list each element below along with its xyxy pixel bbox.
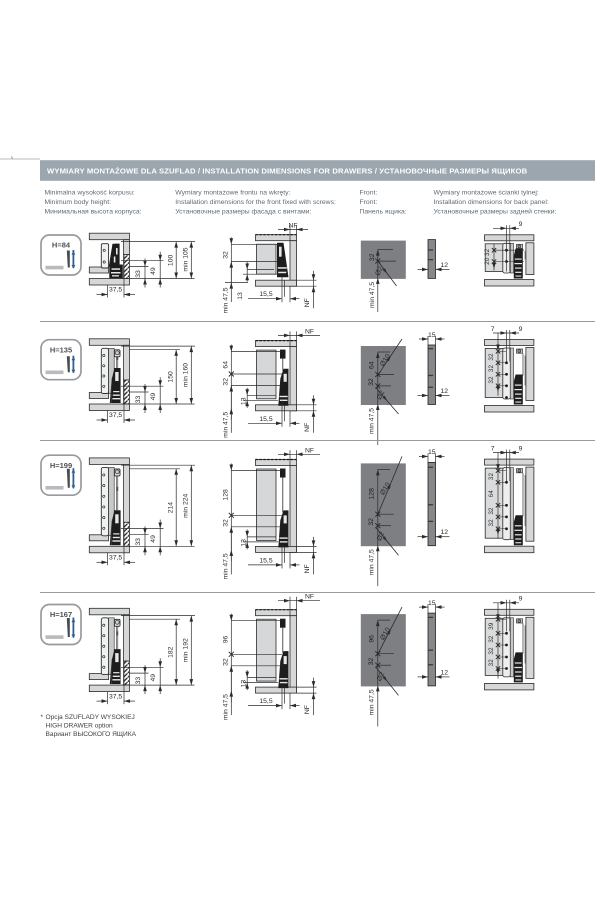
- svg-text:32: 32: [222, 519, 229, 527]
- svg-text:15,5: 15,5: [259, 557, 272, 564]
- svg-text:*: *: [41, 714, 44, 721]
- svg-text:214: 214: [167, 502, 174, 514]
- svg-text:32: 32: [222, 658, 229, 666]
- svg-text:15: 15: [428, 449, 436, 456]
- svg-text:NF: NF: [305, 328, 314, 335]
- svg-text:64: 64: [488, 490, 495, 498]
- svg-text:NF: NF: [304, 705, 311, 714]
- svg-text:33: 33: [135, 677, 142, 685]
- svg-text:Installation dimensions for ba: Installation dimensions for back panel:: [434, 199, 549, 206]
- svg-text:128: 128: [222, 489, 229, 501]
- svg-text:37,5: 37,5: [109, 693, 122, 700]
- svg-text:32: 32: [222, 378, 229, 386]
- svg-text:32: 32: [488, 376, 495, 384]
- svg-text:NF: NF: [304, 564, 311, 573]
- svg-text:64: 64: [368, 361, 375, 369]
- svg-text:49: 49: [150, 393, 157, 401]
- svg-text:min 224: min 224: [183, 493, 190, 517]
- svg-text:NF: NF: [288, 223, 297, 230]
- svg-text:15,5: 15,5: [259, 698, 272, 705]
- svg-text:min 47,5: min 47,5: [222, 412, 229, 438]
- svg-text:15: 15: [428, 332, 436, 339]
- svg-text:33: 33: [135, 396, 142, 404]
- svg-text:96: 96: [222, 636, 229, 644]
- svg-text:32: 32: [222, 251, 229, 259]
- svg-text:12: 12: [441, 262, 449, 269]
- svg-text:49: 49: [150, 674, 157, 682]
- svg-text:33: 33: [135, 270, 142, 278]
- svg-text:H=84: H=84: [52, 241, 71, 250]
- svg-text:182: 182: [167, 646, 174, 658]
- svg-text:39: 39: [488, 622, 495, 630]
- svg-text:12: 12: [441, 669, 449, 676]
- svg-text:min 47,5: min 47,5: [368, 689, 375, 715]
- svg-text:20: 20: [484, 257, 491, 265]
- svg-text:Wymiary montażowe ścianki tyln: Wymiary montażowe ścianki tylnej:: [434, 189, 539, 196]
- svg-text:9: 9: [519, 596, 523, 603]
- svg-text:32: 32: [488, 635, 495, 643]
- svg-text:15,5: 15,5: [259, 416, 272, 423]
- svg-text:HIGH DRAWER option: HIGH DRAWER option: [46, 723, 114, 730]
- svg-text:32: 32: [488, 659, 495, 667]
- svg-text:13: 13: [240, 539, 247, 547]
- svg-text:32: 32: [488, 647, 495, 655]
- svg-text:32: 32: [369, 253, 376, 261]
- svg-text:Minimalna wysokość korpusu:: Minimalna wysokość korpusu:: [45, 189, 135, 196]
- svg-text:150: 150: [167, 371, 174, 383]
- svg-text:33: 33: [135, 538, 142, 546]
- svg-text:min 47,5: min 47,5: [222, 287, 229, 313]
- svg-text:37,5: 37,5: [109, 287, 122, 294]
- svg-text:32: 32: [368, 378, 375, 386]
- svg-text:Установочные размеры фасада с: Установочные размеры фасада с винтами:: [175, 209, 311, 216]
- svg-text:12: 12: [441, 529, 449, 536]
- svg-text:7: 7: [491, 446, 495, 453]
- svg-text:Панель ящика:: Панель ящика:: [360, 209, 407, 216]
- svg-text:Installation dimensions for th: Installation dimensions for the front fi…: [175, 199, 336, 206]
- svg-text:min 105: min 105: [183, 247, 190, 271]
- svg-text:Minimum body height:: Minimum body height:: [45, 199, 112, 206]
- svg-text:min 47,5: min 47,5: [369, 282, 376, 308]
- svg-text:Вариант ВЫСОКОГО ЯЩИКА: Вариант ВЫСОКОГО ЯЩИКА: [46, 731, 137, 738]
- svg-text:H=135: H=135: [50, 345, 72, 354]
- svg-text:NF: NF: [304, 298, 311, 307]
- svg-text:13: 13: [240, 397, 247, 405]
- svg-text:H=199: H=199: [50, 461, 72, 470]
- svg-text:min 160: min 160: [183, 363, 190, 387]
- svg-text:9: 9: [519, 221, 523, 228]
- svg-text:13: 13: [240, 680, 247, 688]
- svg-text:min 47,5: min 47,5: [368, 408, 375, 434]
- svg-text:32: 32: [368, 658, 375, 666]
- svg-text:32: 32: [484, 248, 491, 256]
- svg-text:min 192: min 192: [183, 638, 190, 662]
- svg-text:32: 32: [488, 519, 495, 527]
- svg-text:9: 9: [519, 445, 523, 452]
- svg-text:Минимальная высота корпуса:: Минимальная высота корпуса:: [45, 209, 142, 216]
- svg-text:min 47,5: min 47,5: [222, 694, 229, 720]
- svg-text:Opcja SZUFLADY WYSOKIEJ: Opcja SZUFLADY WYSOKIEJ: [46, 714, 135, 721]
- svg-text:NF: NF: [305, 447, 314, 454]
- svg-text:13: 13: [237, 292, 244, 300]
- svg-text:15,5: 15,5: [259, 291, 272, 298]
- svg-text:Front:: Front:: [360, 199, 378, 206]
- svg-text:32: 32: [368, 518, 375, 526]
- svg-text:Wymiary montażowe frontu na wk: Wymiary montażowe frontu na wkręty:: [175, 189, 290, 196]
- svg-text:15: 15: [428, 600, 436, 607]
- svg-text:32: 32: [488, 353, 495, 361]
- svg-text:NF: NF: [304, 423, 311, 432]
- svg-text:32: 32: [488, 473, 495, 481]
- svg-text:64: 64: [222, 361, 229, 369]
- svg-text:12: 12: [441, 388, 449, 395]
- svg-text:min 47,5: min 47,5: [222, 553, 229, 579]
- svg-text:32: 32: [488, 507, 495, 515]
- svg-text:Установочные размеры задней ст: Установочные размеры задней стенки:: [434, 208, 557, 216]
- svg-text:96: 96: [368, 635, 375, 643]
- svg-text:H=167: H=167: [50, 610, 72, 619]
- svg-text:WYMIARY MONTAŻOWE DLA SZUFLAD: WYMIARY MONTAŻOWE DLA SZUFLAD / INSTALLA…: [47, 167, 528, 176]
- svg-text:49: 49: [150, 267, 157, 275]
- svg-text:9: 9: [519, 326, 523, 333]
- svg-text:37,5: 37,5: [109, 555, 122, 562]
- svg-text:7: 7: [491, 326, 495, 333]
- svg-text:49: 49: [150, 535, 157, 543]
- svg-text:Front:: Front:: [360, 189, 378, 196]
- svg-text:100: 100: [167, 255, 174, 267]
- svg-text:37,5: 37,5: [109, 412, 122, 419]
- svg-text:128: 128: [368, 488, 375, 500]
- svg-text:min 47,5: min 47,5: [368, 549, 375, 575]
- svg-text:32: 32: [488, 365, 495, 373]
- svg-text:NF: NF: [305, 594, 314, 601]
